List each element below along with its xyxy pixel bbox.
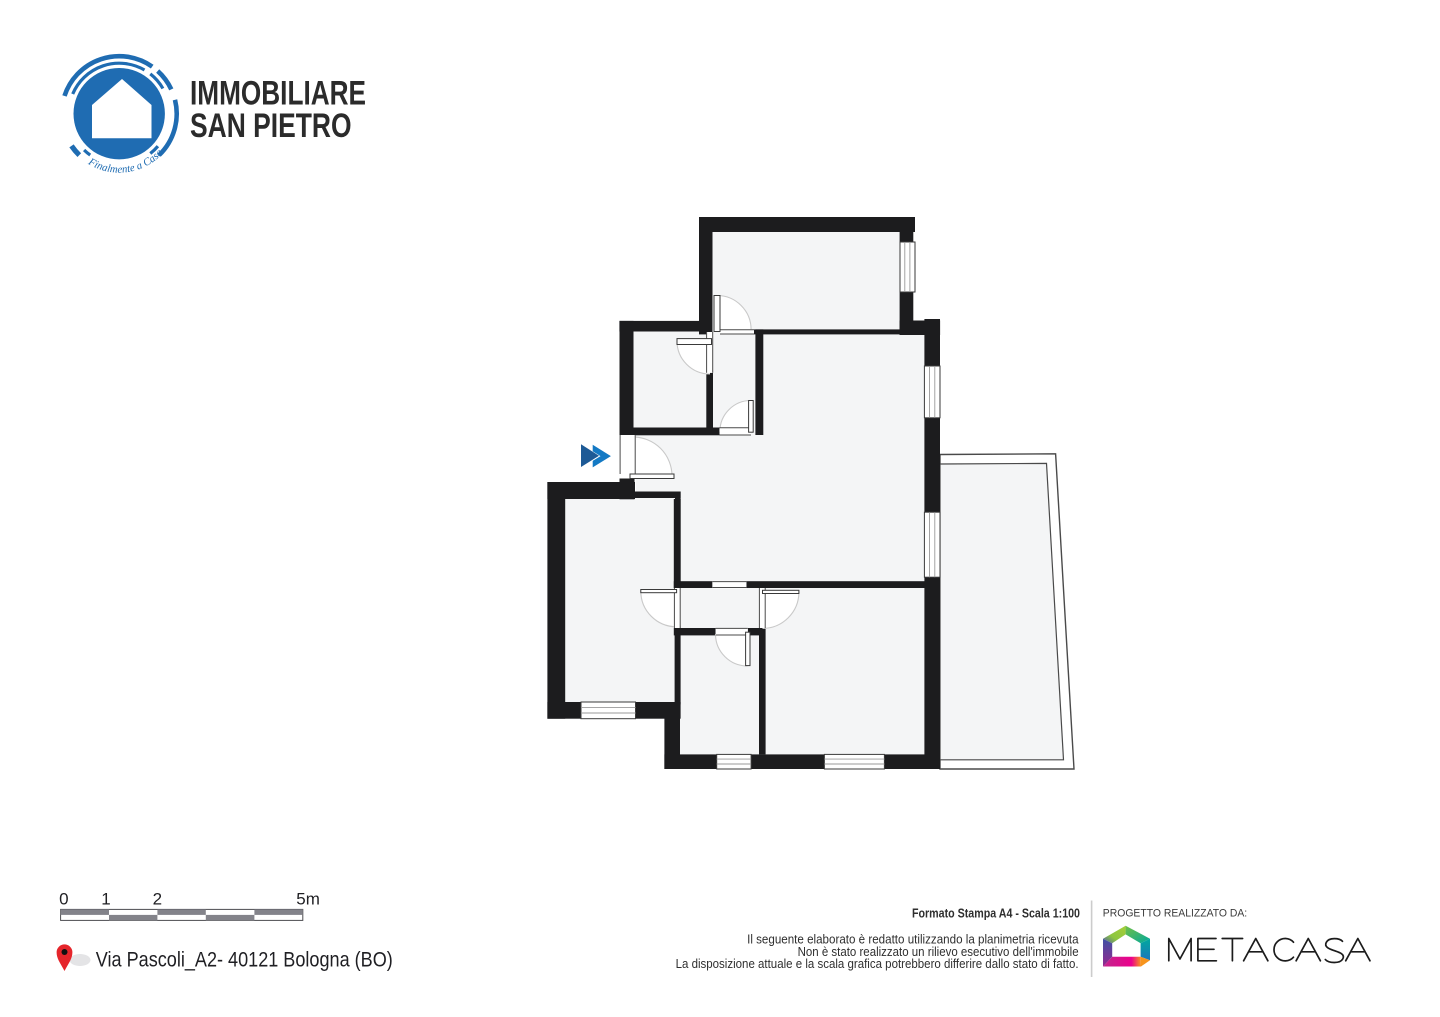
svg-text:PROGETTO REALIZZATO DA:: PROGETTO REALIZZATO DA: [1103, 908, 1247, 920]
svg-text:SAN PIETRO: SAN PIETRO [190, 107, 352, 145]
svg-text:5m: 5m [296, 890, 320, 909]
svg-text:2: 2 [153, 890, 162, 909]
svg-text:Via Pascoli_A2- 40121 Bologna: Via Pascoli_A2- 40121 Bologna (BO) [96, 949, 393, 972]
svg-text:La disposizione attuale e la s: La disposizione attuale e la scala grafi… [676, 956, 1079, 971]
svg-text:0: 0 [59, 890, 68, 909]
svg-text:Formato Stampa A4 - Scala 1:10: Formato Stampa A4 - Scala 1:100 [912, 906, 1080, 921]
svg-text:1: 1 [101, 890, 110, 909]
